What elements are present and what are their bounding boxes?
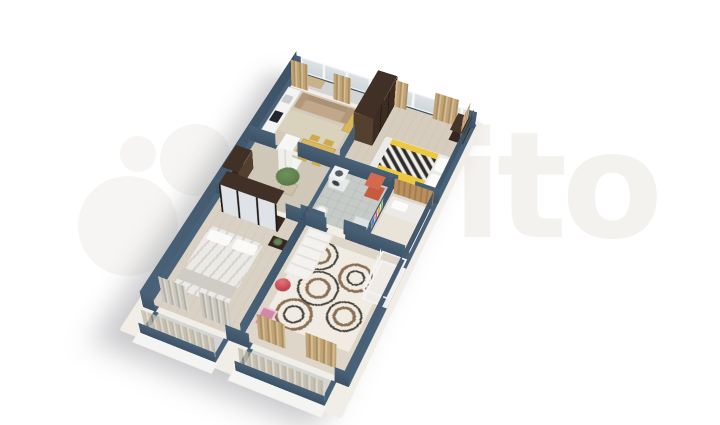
floorplan-scene [143, 68, 476, 387]
watermark-circle-small [120, 136, 156, 172]
loggia-curtain-right [333, 73, 351, 105]
watermark-text: ito [452, 112, 657, 260]
loggia-curtain-left [291, 59, 308, 91]
